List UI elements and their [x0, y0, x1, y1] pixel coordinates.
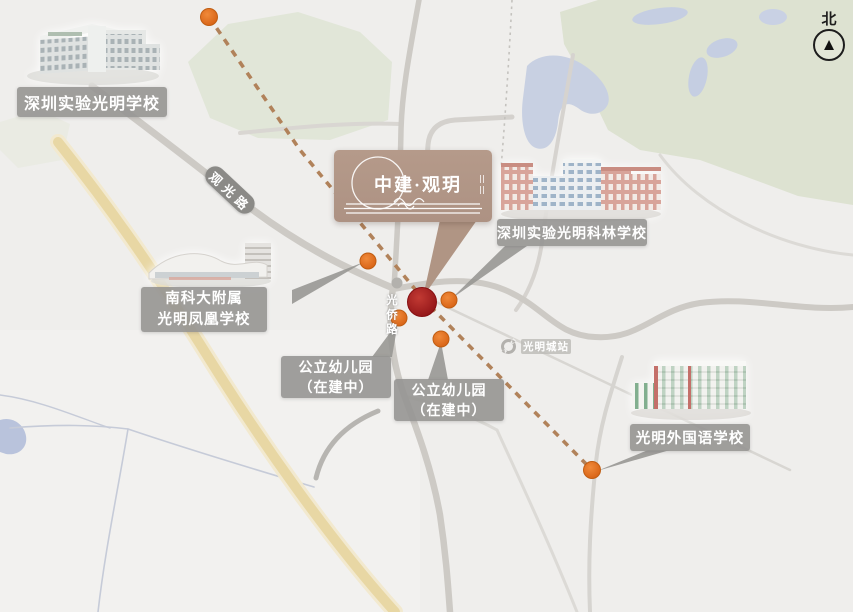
road-label-guangqiao: 光侨路: [383, 294, 399, 338]
location-map: 深圳实验光明学校 南科大附属 光明凤凰学校 深圳实验光明科林学校 光明外国语学校…: [0, 0, 853, 612]
project-marker: [408, 288, 437, 317]
poi-dot-kelin: [441, 292, 457, 308]
compass-north-label: 北: [816, 8, 842, 29]
school-photo-fenghuang: [145, 237, 277, 289]
label-text-line2: 光明凤凰学校: [158, 310, 251, 331]
poi-dot-foreign-language: [584, 462, 601, 479]
poi-dot-school-a: [201, 9, 218, 26]
label-text: 深圳实验光明学校: [24, 90, 160, 114]
label-school-shenzhen-experimental: 深圳实验光明学校: [17, 87, 167, 117]
label-text-line1: 公立幼儿园: [412, 380, 487, 400]
school-photo-foreign-language: [626, 357, 756, 423]
label-text-line2: （在建中）: [412, 400, 487, 420]
label-school-kelin: 深圳实验光明科林学校: [497, 219, 647, 246]
logo-side-mark: [480, 186, 481, 194]
label-text-line1: 公立幼儿园: [299, 357, 374, 377]
label-text-line2: （在建中）: [299, 377, 374, 397]
label-kindergarten-2: 公立幼儿园 （在建中）: [394, 379, 504, 421]
poi-dot-fenghuang: [360, 253, 376, 269]
poi-dot-kindergarten-2: [433, 331, 449, 347]
label-text: 光明外国语学校: [636, 427, 745, 448]
project-logo-bubble: 中建·观玥: [334, 150, 492, 222]
logo-side-mark: [483, 186, 484, 194]
label-text-line1: 南科大附属: [165, 289, 243, 310]
logo-side-mark: [483, 175, 484, 183]
label-kindergarten-1: 公立幼儿园 （在建中）: [281, 356, 391, 398]
metro-icon: [500, 338, 517, 355]
label-text: 深圳实验光明科林学校: [497, 223, 647, 243]
project-brand-name: 中建·观玥: [374, 171, 478, 195]
label-school-foreign-language: 光明外国语学校: [630, 424, 750, 451]
logo-side-mark: [480, 175, 481, 183]
metro-station-text: 光明城站: [523, 339, 569, 354]
school-photo-shenzhen-experimental: [18, 10, 168, 88]
road-label-text: 光侨路: [385, 294, 397, 338]
metro-station-label: 光明城站: [521, 339, 571, 354]
road-junction-dot: [392, 278, 403, 289]
label-school-fenghuang: 南科大附属 光明凤凰学校: [141, 287, 267, 332]
compass-arrow-icon: ▲: [821, 36, 838, 53]
compass-icon: ▲: [813, 29, 845, 61]
school-photo-kelin: [495, 152, 667, 224]
